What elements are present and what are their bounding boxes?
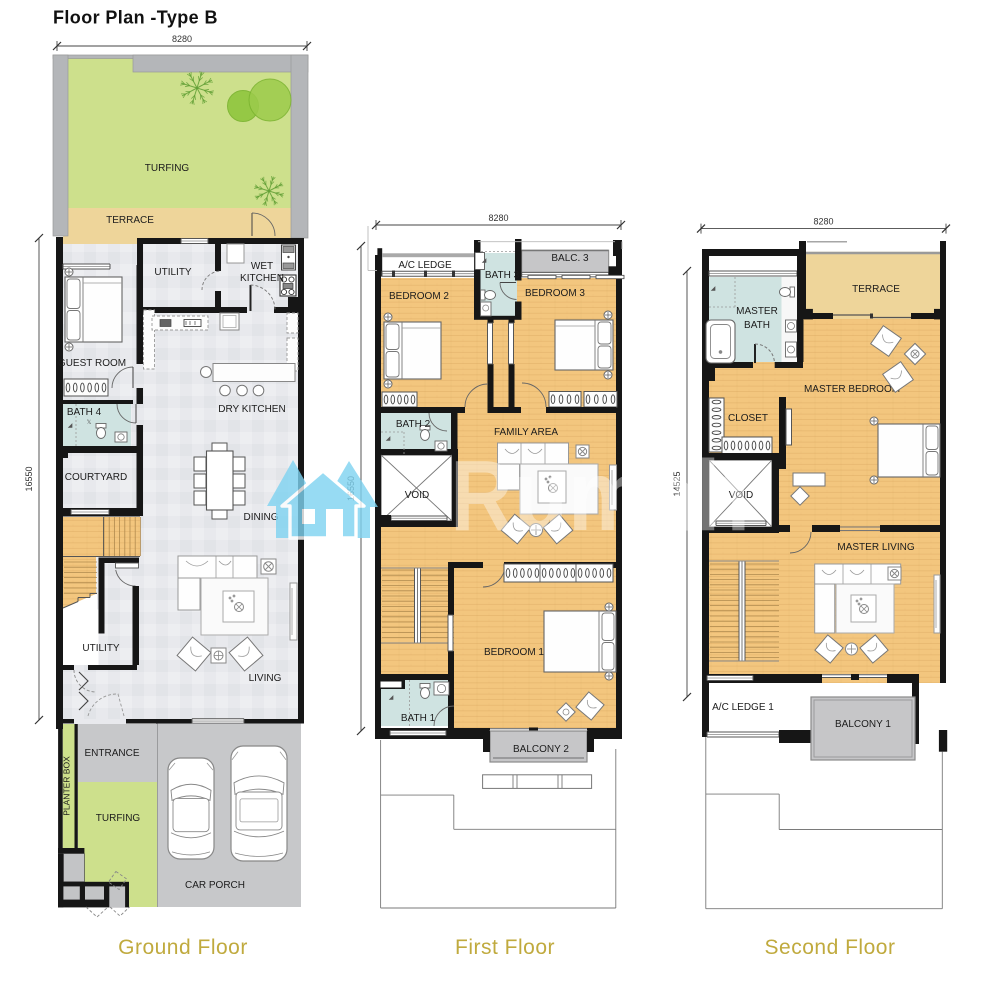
svg-text:FAMILY AREA: FAMILY AREA [494, 427, 558, 438]
svg-text:TURFING: TURFING [145, 163, 190, 174]
svg-text:◢: ◢ [68, 423, 73, 429]
svg-text:8280: 8280 [172, 34, 192, 44]
svg-text:Floor Plan -Type B: Floor Plan -Type B [53, 8, 218, 28]
svg-text:BATH 3: BATH 3 [485, 270, 520, 281]
svg-text:CAR PORCH: CAR PORCH [185, 880, 245, 891]
svg-text:BATH: BATH [744, 320, 770, 331]
svg-text:BALCONY 2: BALCONY 2 [513, 744, 569, 755]
svg-text:BALCONY 1: BALCONY 1 [835, 719, 891, 730]
svg-text:BEDROOM 2: BEDROOM 2 [389, 291, 449, 302]
svg-text:TERRACE: TERRACE [852, 284, 900, 295]
svg-text:BEDROOM 3: BEDROOM 3 [525, 288, 585, 299]
svg-text:MASTER: MASTER [736, 306, 778, 317]
svg-text:BATH 1: BATH 1 [401, 713, 436, 724]
svg-text:UTILITY: UTILITY [154, 267, 192, 278]
svg-text:COURTYARD: COURTYARD [65, 472, 127, 483]
svg-text:LIVING: LIVING [249, 673, 282, 684]
svg-text:BATH 2: BATH 2 [396, 419, 431, 430]
svg-text:◢: ◢ [711, 286, 716, 292]
svg-text:Rumah: Rumah [450, 440, 750, 552]
svg-text:16550: 16550 [24, 466, 34, 491]
svg-text:PLANTER BOX: PLANTER BOX [62, 756, 72, 816]
svg-text:BEDROOM 1: BEDROOM 1 [484, 647, 544, 658]
svg-text:BALC. 3: BALC. 3 [551, 253, 589, 264]
svg-text:DINING: DINING [244, 512, 279, 523]
svg-text:First Floor: First Floor [455, 936, 555, 959]
svg-text:A/C LEDGE 1: A/C LEDGE 1 [712, 702, 774, 713]
svg-text:8280: 8280 [488, 213, 508, 223]
svg-text:MASTER BEDROOM: MASTER BEDROOM [804, 384, 900, 395]
svg-text:KITCHEN: KITCHEN [240, 273, 284, 284]
svg-text:UTILITY: UTILITY [82, 643, 120, 654]
svg-text:𝕏: 𝕏 [87, 419, 92, 426]
svg-text:DRY KITCHEN: DRY KITCHEN [218, 404, 285, 415]
svg-text:◢: ◢ [389, 695, 394, 701]
svg-text:ENTRANCE: ENTRANCE [84, 748, 139, 759]
svg-text:◢: ◢ [386, 436, 391, 442]
svg-text:WET: WET [251, 261, 273, 272]
svg-text:TURFING: TURFING [96, 813, 141, 824]
svg-text:VOID: VOID [405, 490, 429, 501]
svg-text:Ground Floor: Ground Floor [118, 936, 248, 959]
svg-text:CLOSET: CLOSET [728, 413, 768, 424]
svg-text:TERRACE: TERRACE [106, 215, 154, 226]
svg-text:BATH 4: BATH 4 [67, 407, 102, 418]
svg-text:Second Floor: Second Floor [765, 936, 896, 959]
svg-text:MASTER LIVING: MASTER LIVING [837, 542, 914, 553]
svg-text:◢: ◢ [482, 258, 487, 264]
svg-text:A/C LEDGE: A/C LEDGE [398, 260, 452, 271]
svg-text:8280: 8280 [813, 217, 833, 227]
svg-text:GUEST ROOM: GUEST ROOM [58, 358, 126, 369]
